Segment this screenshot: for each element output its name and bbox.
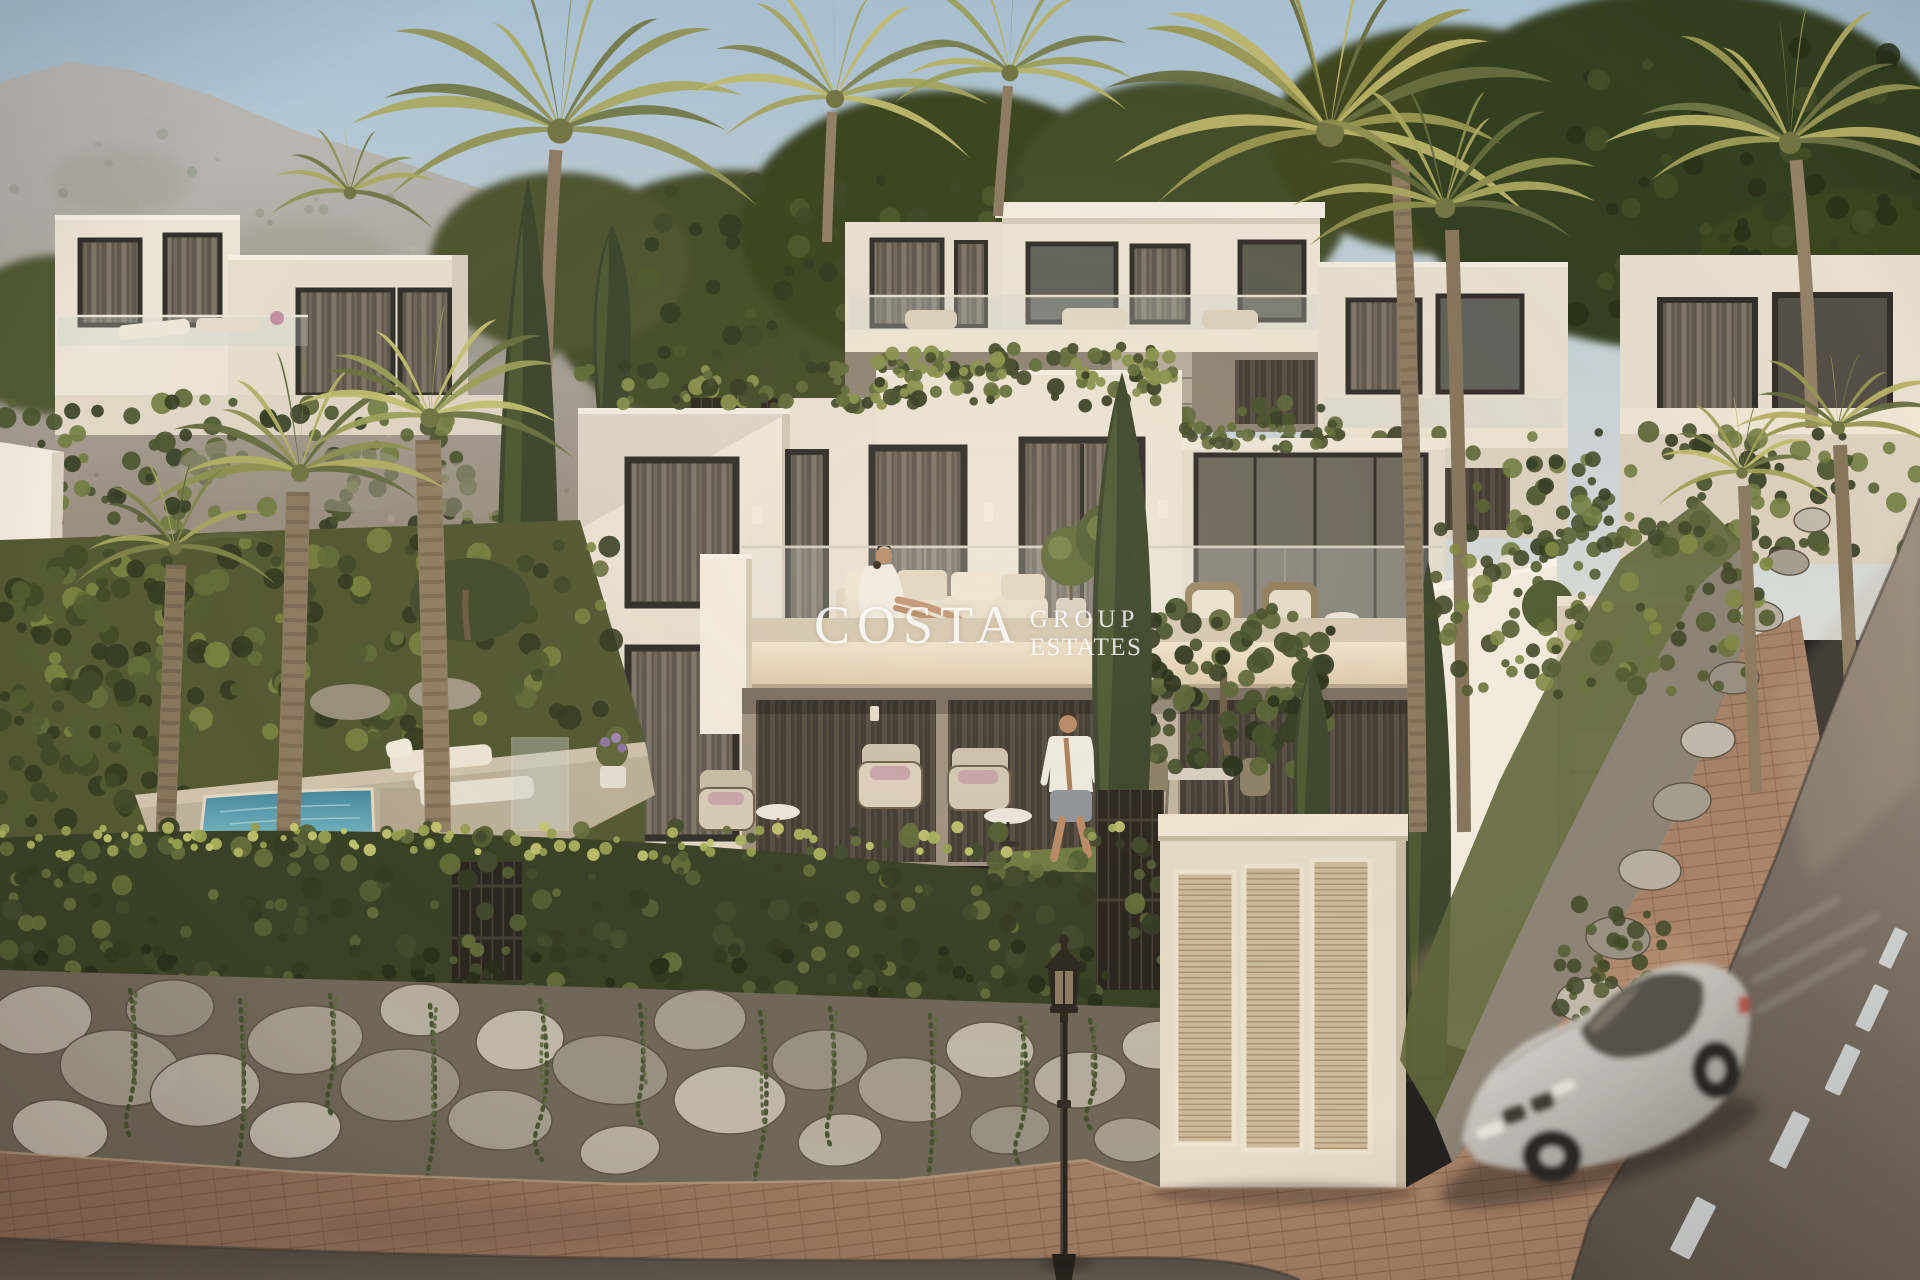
color-grade <box>0 0 1920 1280</box>
render-scene <box>0 0 1920 1280</box>
property-render: COSTA GROUP ESTATES <box>0 0 1920 1280</box>
